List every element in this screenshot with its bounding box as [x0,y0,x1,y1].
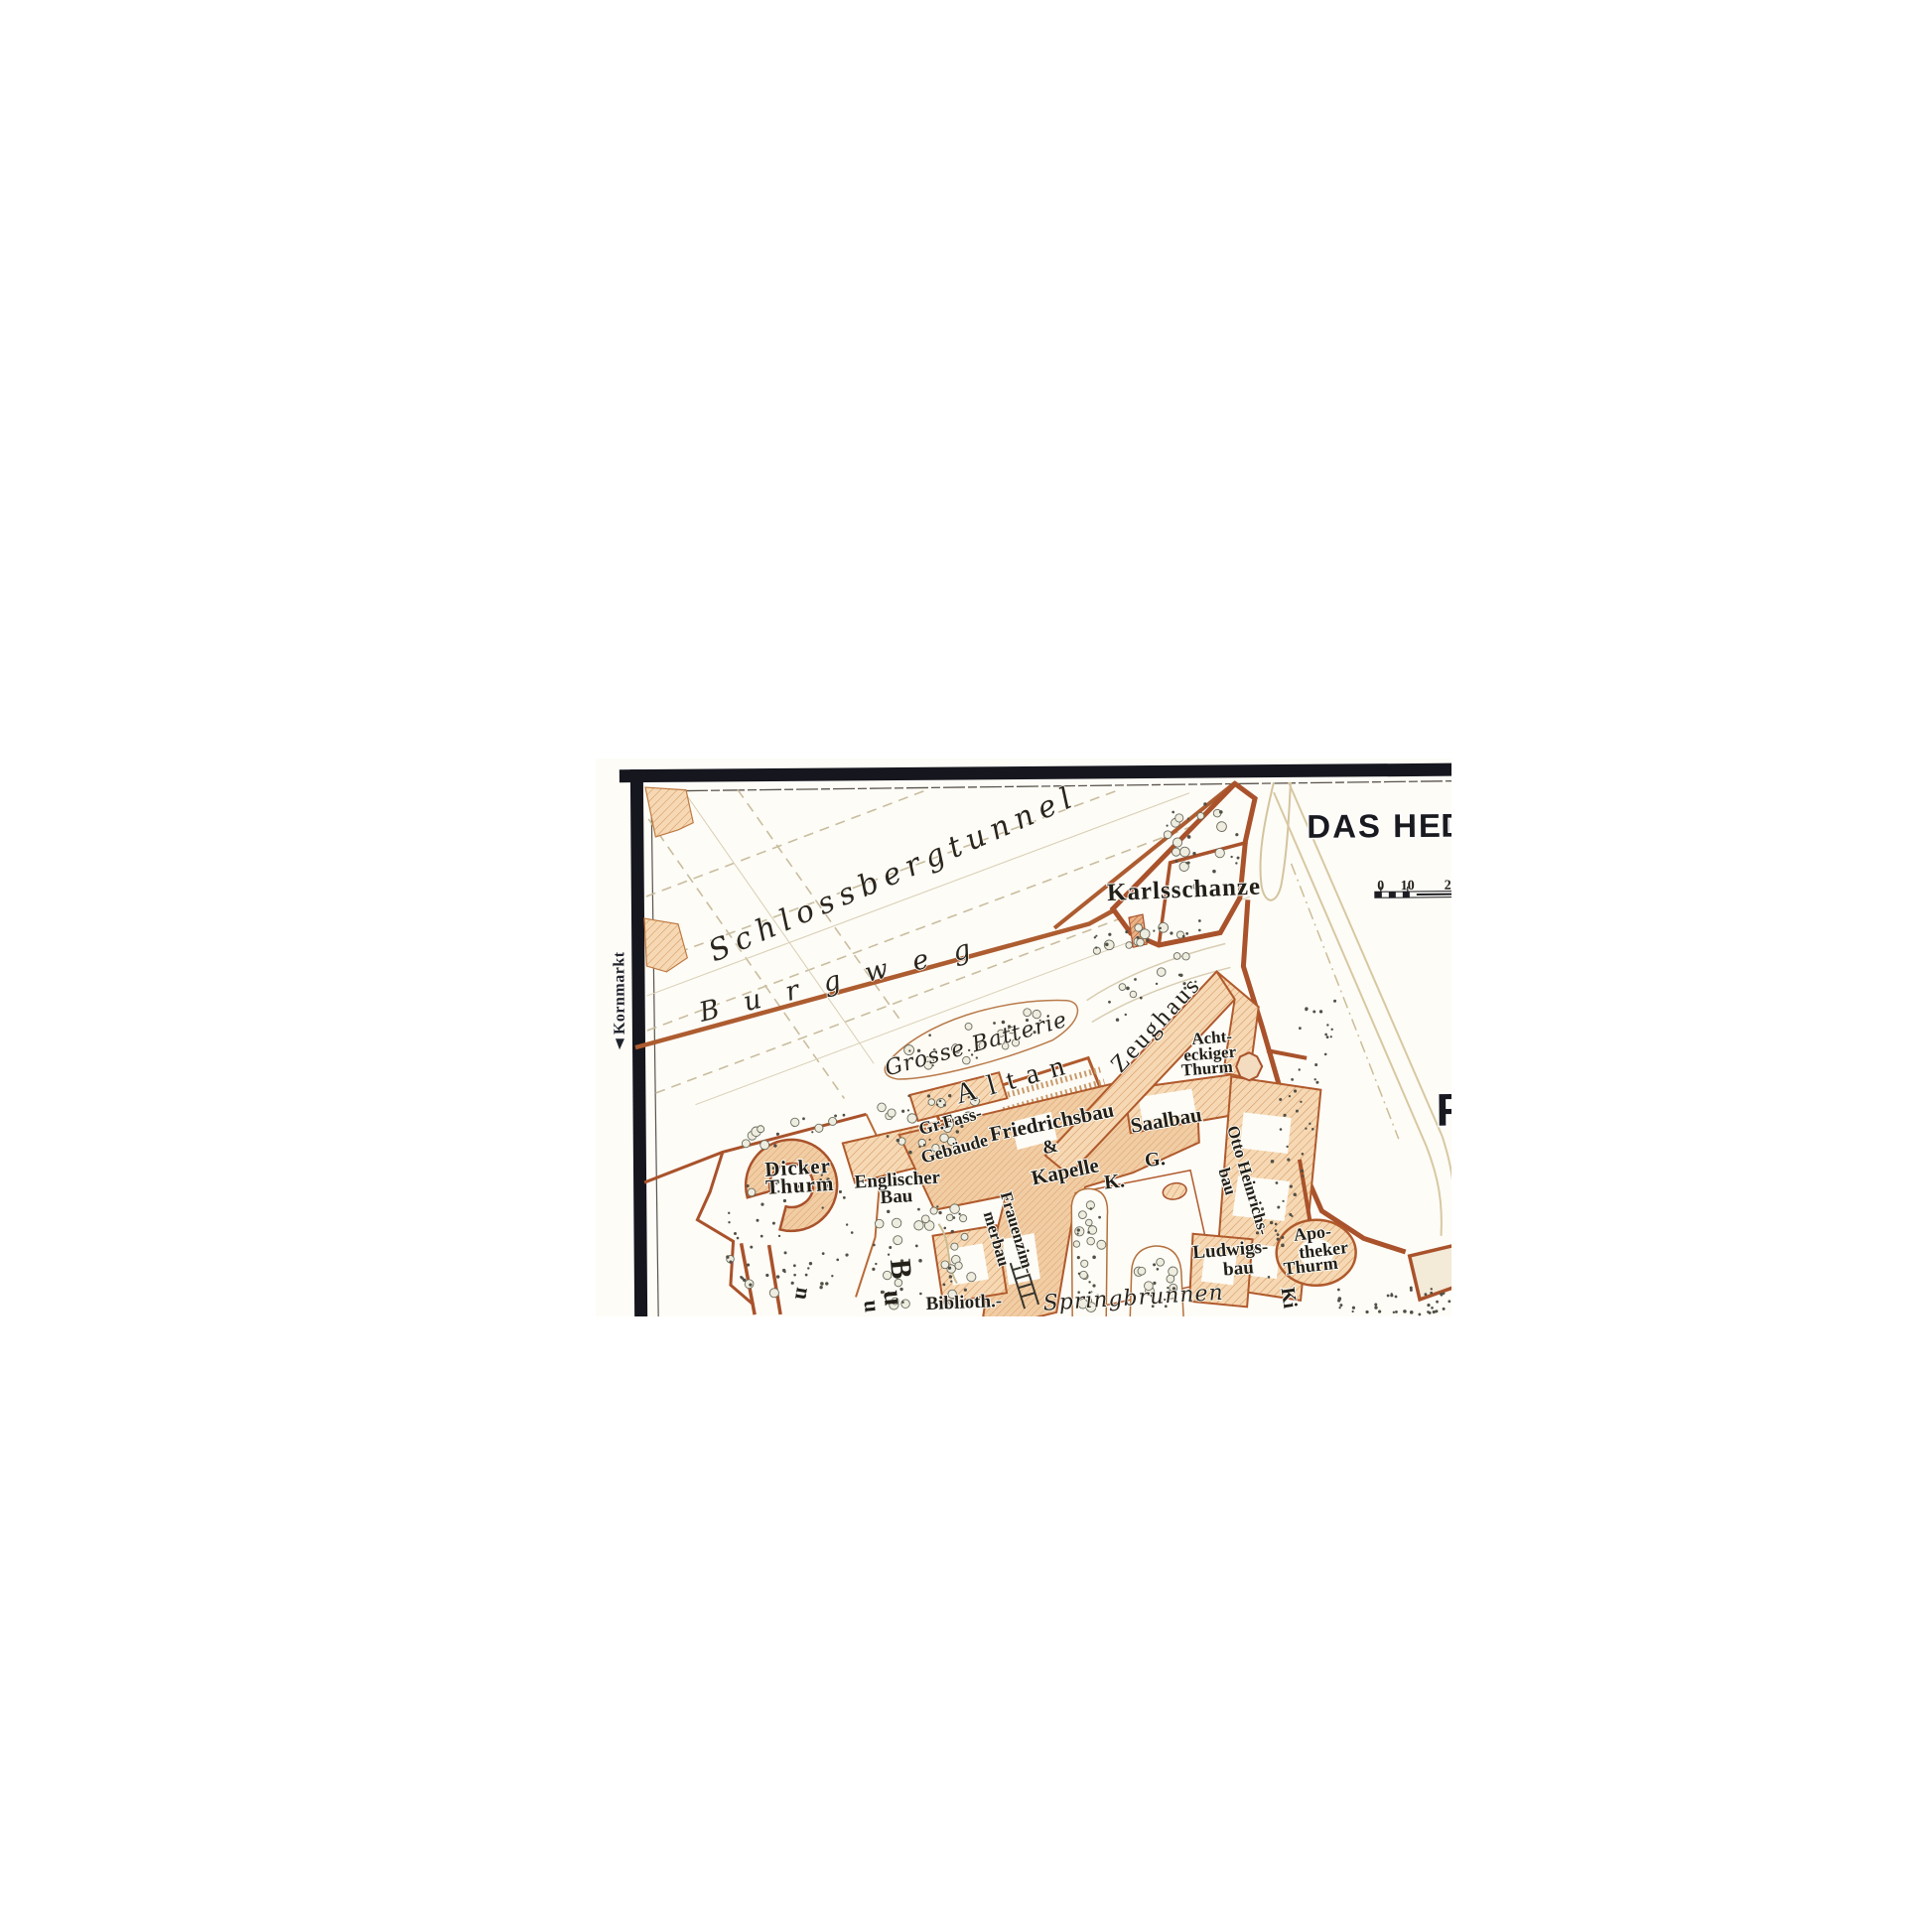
stipple-dot [915,1245,918,1248]
stipple-dot [927,1094,930,1097]
stipple-dot [1108,1001,1111,1004]
tree-icon [1097,1240,1106,1249]
stipple-dot [956,1130,959,1133]
stipple-dot [873,1244,876,1247]
tree-icon [1086,1219,1093,1226]
stipple-dot [1281,1244,1285,1248]
stipple-dot [1280,1128,1283,1131]
stipple-dot [887,1135,890,1138]
stipple-dot [1153,930,1155,932]
stipple-dot [1299,1027,1302,1030]
tree-icon [1135,924,1143,932]
tree-icon [1126,942,1133,949]
tree-icon [950,1204,960,1214]
tree-icon [907,1114,916,1123]
stipple-dot [1315,1081,1318,1084]
stipple-dot [1333,1000,1336,1003]
stipple-dot [897,1139,900,1143]
stipple-dot [1125,1014,1127,1016]
stipple-dot [1090,1207,1093,1210]
map-label-kornmarkt: Kornmarkt [611,951,628,1035]
stipple-dot [1431,1307,1434,1310]
tree-icon [748,1188,756,1196]
tree-icon [758,1126,764,1133]
stipple-dot [872,1268,875,1271]
stipple-dot [1185,932,1188,935]
tree-icon [875,1219,884,1228]
stipple-dot [1157,1268,1160,1271]
stipple-dot [1330,1035,1332,1037]
stipple-dot [791,1282,794,1285]
stipple-dot [908,1151,912,1155]
stipple-dot [1146,939,1149,942]
stipple-dot [1077,1232,1079,1234]
stipple-dot [1277,1206,1280,1209]
stipple-dot [807,1267,809,1269]
stipple-dot [907,1095,909,1097]
map-label-f-letter: F [1436,1084,1466,1136]
stipple-dot [846,1223,848,1225]
stipple-dot [1235,833,1238,836]
stipple-dot [728,1221,730,1223]
tree-icon [1182,953,1189,960]
stipple-dot [1378,1310,1381,1312]
stipple-dot [1088,1281,1090,1283]
stipple-dot [776,1133,779,1136]
stipple-dot [952,1216,955,1219]
stipple-dot [821,1206,823,1208]
stipple-dot [1427,1304,1430,1307]
stipple-dot [831,1275,833,1277]
stipple-dot [1198,919,1201,922]
stipple-dot [1390,1294,1393,1297]
stipple-dot [1424,1293,1427,1296]
stipple-dot [839,1190,842,1193]
map-label-englischer-bau: Bau [880,1185,913,1208]
stipple-dot [1153,1263,1156,1266]
stipple-dot [1235,862,1237,864]
stipple-dot [907,1109,909,1111]
stipple-dot [1395,1296,1398,1299]
tree-icon [967,1273,976,1282]
stipple-dot [737,1237,740,1240]
stipple-dot [1187,835,1191,839]
tree-icon [1217,822,1227,832]
stipple-dot [1319,1010,1322,1013]
stipple-dot [939,1100,942,1103]
stipple-dot [1305,1127,1307,1129]
stipple-dot [993,1022,996,1025]
stipple-dot [1287,1158,1290,1161]
stipple-dot [951,1230,954,1233]
stipple-dot [1095,946,1097,948]
tree-icon [1197,812,1204,819]
tree-icon [1137,938,1145,946]
stipple-dot [1078,1273,1080,1275]
stipple-dot [747,1263,750,1266]
stipple-dot [1309,1123,1311,1125]
building-southeast [1410,1246,1459,1300]
stipple-dot [901,1110,904,1113]
stipple-dot [1330,1029,1332,1031]
stipple-dot [1283,1114,1286,1117]
stipple-dot [1126,987,1130,991]
stipple-dot [888,1253,890,1255]
stipple-dot [811,1131,813,1133]
stipple-dot [1277,1238,1280,1241]
stipple-dot [1294,1089,1297,1092]
stipple-dot [747,1184,750,1187]
stipple-dot [772,1222,775,1225]
stipple-dot [1279,1098,1282,1101]
stipple-dot [1092,1256,1096,1260]
stipple-dot [1077,1228,1080,1231]
stipple-dot [943,1227,946,1230]
stipple-dot [1352,1307,1355,1310]
stipple-dot [760,1235,763,1238]
stipple-dot [889,1246,892,1249]
stipple-dot [773,1144,776,1147]
stipple-dot [1268,1276,1271,1279]
stipple-dot [825,1282,828,1285]
stipple-dot [1289,1095,1291,1097]
stipple-dot [948,1266,951,1269]
stipple-dot [1281,1236,1284,1239]
stipple-dot [836,1259,839,1262]
stipple-dot [1311,1128,1314,1131]
stipple-dot [938,1211,941,1214]
tree-icon [955,1262,962,1269]
stipple-dot [1077,1256,1080,1259]
stipple-dot [1324,1034,1327,1036]
stipple-dot [1436,1301,1439,1304]
stipple-dot [936,1205,938,1207]
stipple-dot [1237,857,1240,860]
stipple-dot [1302,1174,1304,1176]
tree-icon [1079,1211,1087,1219]
stipple-dot [1203,802,1206,805]
stipple-dot [1212,870,1216,874]
map-label-scale-partial: 2 [1445,879,1451,894]
stipple-dot [1275,1229,1278,1232]
stipple-dot [820,1282,824,1286]
stipple-dot [740,1276,743,1279]
stipple-dot [1182,935,1185,938]
stipple-dot [1302,1153,1305,1156]
stipple-dot [1174,860,1177,863]
map-label-title: DAS HEI [1307,807,1453,845]
tree-icon [946,1214,953,1221]
stipple-dot [1299,1068,1301,1070]
stipple-dot [1134,978,1137,981]
tree-icon [965,1023,972,1030]
stipple-dot [1443,1308,1446,1311]
stipple-dot [1374,1303,1377,1306]
stipple-dot [1291,1078,1294,1081]
map-label-ludwigs-bau: bau [1222,1257,1255,1280]
stipple-dot [919,1293,922,1296]
tree-icon [1080,1271,1088,1279]
stipple-dot [1296,1110,1299,1113]
stipple-dot [1305,1009,1308,1012]
stipple-dot [1365,1311,1368,1313]
stipple-dot [1286,1146,1288,1148]
tree-icon [1173,953,1180,960]
stipple-dot [1178,974,1181,977]
tree-icon [878,1103,887,1112]
stipple-dot [1448,1300,1450,1303]
stipple-dot [1116,1019,1119,1022]
stipple-dot [1443,1293,1445,1295]
stipple-dot [887,1210,890,1213]
stipple-dot [1192,852,1195,855]
tree-icon [829,1117,837,1125]
stipple-dot [805,1274,808,1277]
stipple-dot [1098,1216,1101,1219]
stipple-dot [1326,1024,1328,1026]
stipple-dot [1326,1035,1329,1038]
tree-icon [895,1279,902,1287]
stipple-dot [1289,1213,1292,1216]
stipple-dot [1271,1160,1275,1164]
tree-icon [961,1233,968,1240]
map-label-scale-10: 10 [1401,879,1415,894]
stipple-dot [1277,1233,1280,1236]
stipple-dot [1352,1311,1354,1312]
stipple-dot [1092,1284,1095,1287]
map-label-frag-ki: Ki [1277,1286,1302,1311]
scanned-map-page: DAS HEIDF0102KornmarktSchlossbergtunnelB… [0,0,1932,1932]
stipple-dot [822,1252,825,1255]
stipple-dot [1219,810,1223,814]
stipple-dot [784,1251,787,1254]
stipple-dot [1300,1101,1302,1103]
tree-icon [1167,1275,1174,1283]
stipple-dot [1136,936,1139,939]
stipple-dot [1156,983,1158,985]
stipple-dot [1410,1311,1414,1314]
stipple-dot [1105,942,1109,946]
tree-icon [1073,1241,1079,1247]
stipple-dot [1108,933,1111,936]
stipple-dot [728,1212,730,1214]
stipple-dot [843,1114,846,1117]
stipple-dot [1095,935,1097,937]
stipple-dot [750,1246,753,1249]
stipple-dot [1418,1313,1421,1316]
stipple-dot [845,1253,848,1256]
stipple-dot [964,1289,967,1292]
stipple-dot [743,1279,746,1282]
stipple-dot [1313,1078,1315,1080]
map-label-acht-thurm: Thurm [1180,1057,1233,1080]
stipple-dot [936,1103,938,1105]
tree-icon [921,1215,929,1223]
stipple-dot [1430,1292,1433,1295]
map-label-dicker-thurm: Thurm [765,1172,836,1199]
tree-icon [914,1221,923,1230]
tree-icon [959,1215,966,1222]
stipple-dot [1410,1289,1413,1292]
stipple-dot [949,1275,952,1278]
tree-icon [1138,1267,1146,1275]
stipple-dot [760,1203,763,1206]
stipple-dot [783,1271,785,1273]
map-label-k-abbr: K. [1103,1170,1126,1193]
tree-icon [760,1141,769,1150]
stipple-dot [1187,862,1190,865]
stipple-dot [958,1213,960,1215]
stipple-dot [1338,1307,1340,1309]
stipple-dot [1282,1200,1284,1202]
stipple-dot [1324,1053,1327,1056]
stipple-dot [726,1255,729,1258]
tree-icon [1081,1260,1088,1267]
stipple-dot [1387,1295,1390,1298]
stipple-dot [1312,1010,1315,1013]
stipple-dot [928,1139,930,1141]
stipple-dot [778,1235,780,1237]
stipple-dot [1159,927,1162,930]
stipple-dot [1374,1306,1377,1309]
tree-icon [1024,1009,1032,1017]
map-label-frag-b: B [884,1258,918,1281]
stipple-dot [834,1115,837,1118]
tree-icon [892,1218,900,1227]
stipple-dot [1395,1311,1398,1313]
stipple-dot [783,1199,786,1202]
stipple-dot [943,1283,946,1286]
tree-icon [1179,847,1189,857]
stipple-dot [843,1196,846,1199]
stipple-dot [1290,1184,1293,1187]
stipple-dot [809,1262,812,1265]
stipple-dot [765,1274,768,1277]
tree-icon [1157,968,1166,977]
stipple-dot [1170,931,1173,934]
tree-icon [1130,991,1137,998]
tree-icon [1172,848,1179,856]
stipple-dot [776,1275,779,1278]
stipple-dot [1339,1304,1342,1307]
tree-icon [1175,814,1183,822]
tree-icon [894,1236,902,1245]
stipple-dot [1403,1310,1407,1313]
tree-icon [930,1207,937,1214]
stipple-dot [928,1034,931,1036]
tree-icon [1087,1237,1095,1245]
stipple-dot [1198,929,1201,932]
stipple-dot [1337,1289,1340,1292]
map-label-scale-0: 0 [1377,879,1384,894]
stipple-dot [1314,1063,1317,1066]
map-label-biblioth: Biblioth.- [925,1291,1002,1314]
stipple-dot [950,1280,952,1282]
stipple-dot [729,1260,732,1263]
map-scan-area: DAS HEIDF0102KornmarktSchlossbergtunnelB… [596,759,1470,1325]
stipple-dot [1393,1311,1395,1313]
tree-icon [742,1140,750,1148]
tree-icon [951,1243,958,1250]
tree-icon [769,1289,778,1298]
stipple-dot [793,1274,796,1277]
tree-icon [1157,1258,1165,1266]
stipple-dot [793,1264,796,1267]
stipple-dot [802,1117,805,1120]
stipple-dot [1433,1311,1436,1313]
stipple-dot [1187,818,1189,820]
tree-icon [790,1118,798,1126]
stipple-dot [1230,856,1232,858]
tree-icon [888,1109,896,1117]
stipple-dot [875,1263,877,1265]
stipple-dot [851,1231,854,1234]
stipple-dot [749,1284,752,1287]
heidelberg-castle-map-svg: DAS HEIDF0102KornmarktSchlossbergtunnelB… [0,0,1932,1932]
stipple-dot [1166,825,1168,827]
stipple-dot [1337,1299,1340,1302]
stipple-dot [1140,997,1143,1000]
stipple-dot [918,1259,922,1263]
tree-icon [1215,848,1224,857]
stipple-dot [756,1219,759,1222]
stipple-dot [948,1094,951,1097]
tree-icon [941,1261,949,1269]
tree-icon [1119,984,1126,991]
stipple-dot [1301,1170,1304,1173]
stipple-dot [1087,1231,1090,1234]
stipple-dot [1172,811,1174,814]
stipple-dot [1295,1194,1297,1196]
stipple-dot [943,1104,946,1107]
stipple-dot [1125,930,1128,933]
stipple-dot [1431,1288,1433,1290]
stipple-dot [819,1286,822,1289]
stipple-dot [1429,1311,1432,1314]
stipple-dot [917,1208,920,1211]
stipple-dot [1441,1294,1443,1296]
stipple-dot [1276,1181,1279,1184]
map-label-frag-u2: u [860,1299,886,1313]
tree-icon [1164,831,1172,839]
tree-icon [815,1124,823,1132]
map-label-g-abbr: G. [1144,1148,1167,1172]
tree-icon [928,1099,935,1106]
stipple-dot [734,1232,737,1235]
tree-icon [1173,838,1181,847]
stipple-dot [1275,1223,1278,1226]
map-label-title-partial: D [1441,807,1466,844]
